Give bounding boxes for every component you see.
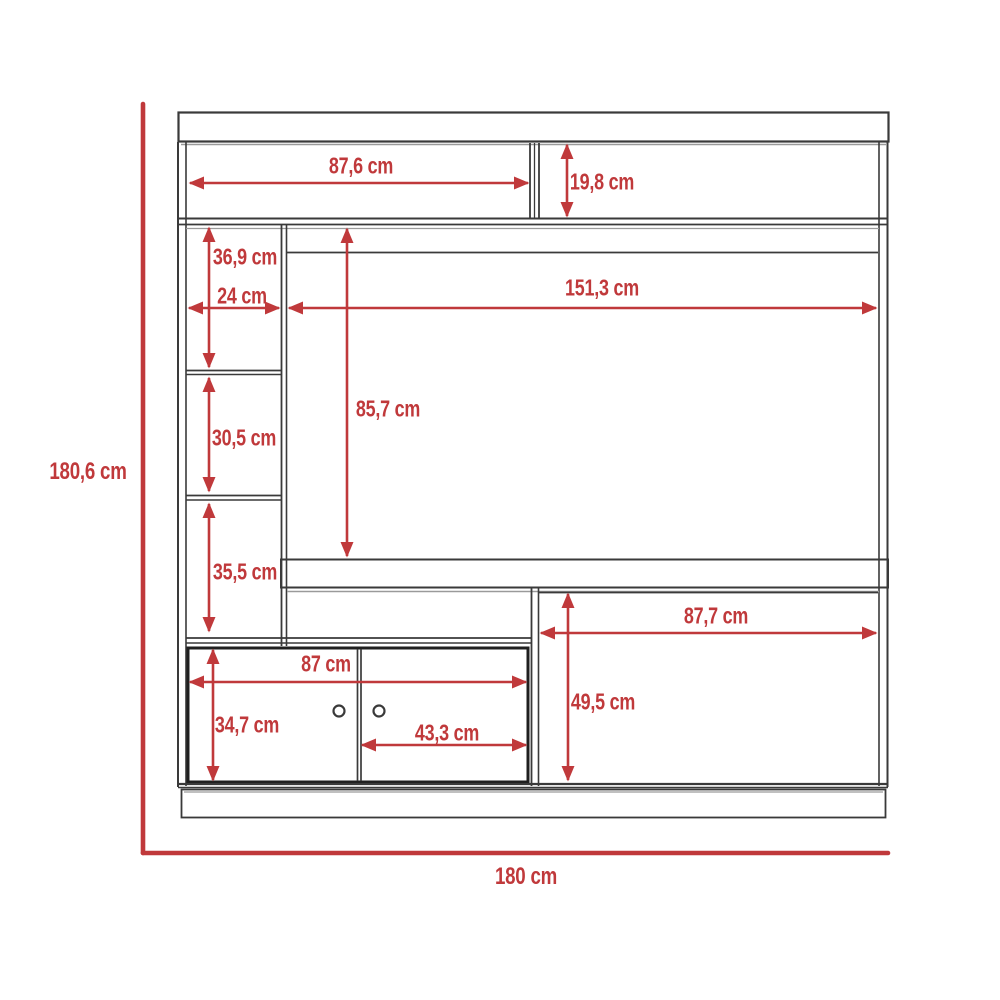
dim-label-tv-opening-width: 151,3 cm [565, 277, 639, 300]
right-door-handle [374, 706, 385, 717]
dim-label-bottom-right-width: 87,7 cm [684, 605, 748, 628]
dim-label-overall-height: 180,6 cm [49, 460, 126, 484]
cabinet-outline [178, 113, 889, 818]
top-board [179, 113, 889, 142]
left-column-shelf-3 [186, 638, 531, 643]
dim-label-left-column-bottom-height: 35,5 cm [213, 561, 277, 584]
left-column-partition [282, 225, 287, 646]
left-column-shelf-2 [186, 496, 281, 501]
left-door-handle [334, 706, 345, 717]
dim-label-top-left-shelf-width: 87,6 cm [329, 155, 393, 178]
dim-label-left-column-width: 24 cm [217, 285, 267, 308]
dimension-lines [143, 104, 888, 853]
dim-label-bottom-right-height: 49,5 cm [571, 691, 635, 714]
bottom-board [178, 784, 888, 788]
upper-row-bottom-board [178, 219, 888, 229]
dim-label-overall-width: 180 cm [495, 865, 557, 889]
furniture-line-drawing [0, 0, 1000, 1000]
bottom-partition [532, 588, 539, 786]
left-column-shelf-1 [186, 371, 281, 375]
dim-label-door-cabinet-height: 34,7 cm [215, 714, 279, 737]
upper-row-partition [530, 143, 539, 218]
diagram-canvas: 87,6 cm 19,8 cm 36,9 cm 24 cm 151,3 cm 8… [0, 0, 1000, 1000]
dim-label-left-column-top-height: 36,9 cm [213, 246, 277, 269]
dim-label-single-door-width: 43,3 cm [415, 722, 479, 745]
dim-label-tv-opening-height: 85,7 cm [356, 398, 420, 421]
dim-label-left-column-middle-height: 30,5 cm [212, 427, 276, 450]
left-side-panel [178, 142, 186, 787]
dim-label-top-right-shelf-height: 19,8 cm [570, 171, 634, 194]
tv-shelf-board [281, 560, 888, 592]
plinth-base [182, 790, 886, 818]
right-side-panel [879, 142, 888, 787]
dim-label-door-cabinet-width: 87 cm [301, 653, 351, 676]
